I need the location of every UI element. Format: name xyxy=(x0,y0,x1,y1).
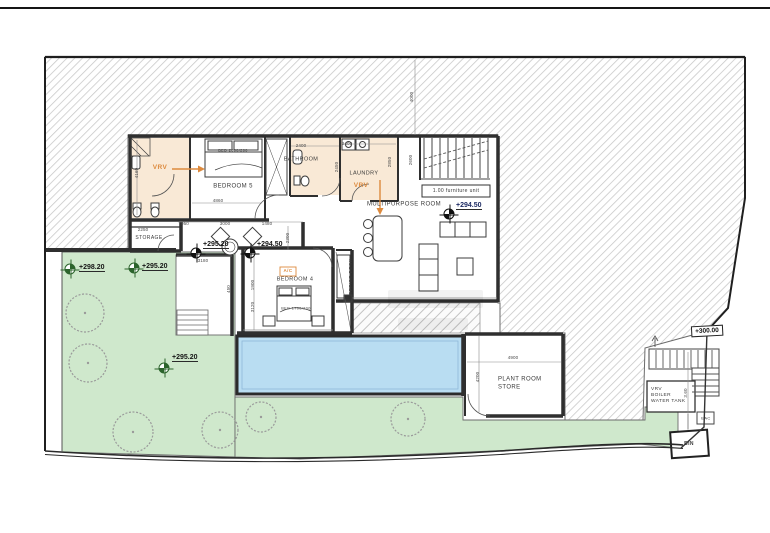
floor-plan-drawing xyxy=(0,0,770,533)
page-frame-line xyxy=(0,7,770,9)
tree-center-dot xyxy=(87,362,89,364)
watermark xyxy=(388,290,483,308)
terrace-steps xyxy=(177,310,208,335)
tree-center-dot xyxy=(219,429,221,431)
floor-plan-canvas: BEDROOM 5BATHROOMLAUNDRYMULTIPURPOSE ROO… xyxy=(0,0,770,533)
swimming-pool xyxy=(237,336,463,394)
tree-center-dot xyxy=(84,312,86,314)
watermark xyxy=(398,318,468,330)
tree-center-dot xyxy=(407,418,409,420)
tree-center-dot xyxy=(260,416,262,418)
tree-center-dot xyxy=(132,431,134,433)
